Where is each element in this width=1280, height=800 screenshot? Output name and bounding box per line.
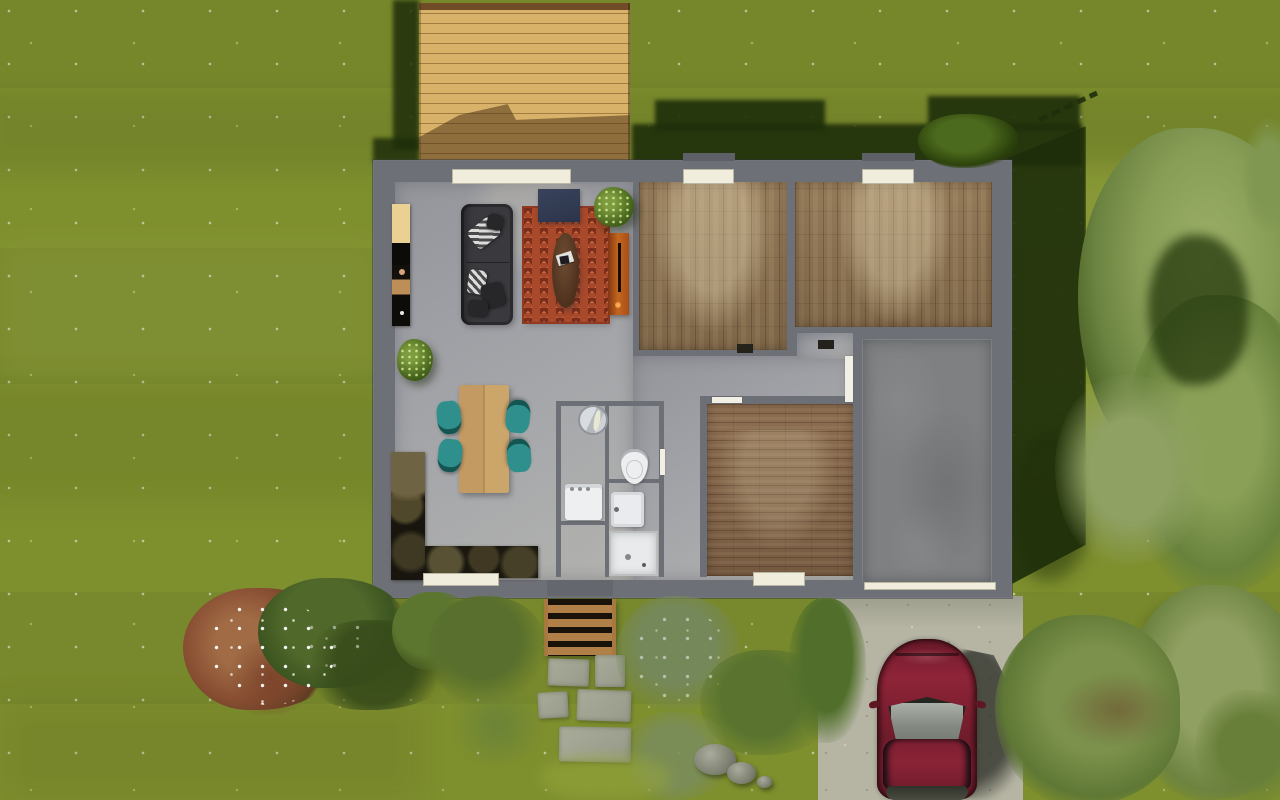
bathroom-door	[660, 449, 665, 475]
tree-right-inner-shadow	[1148, 235, 1248, 385]
house-shadow-top-step-1	[655, 100, 825, 130]
garage-floor	[862, 339, 992, 583]
dining-chair-1	[435, 400, 462, 435]
bedroom-2-door-mark	[818, 340, 834, 349]
bedroom-3-light	[720, 430, 835, 550]
window-kitchen	[423, 573, 499, 586]
bedroom-3-door	[712, 397, 742, 403]
tree-clump-top-right	[918, 114, 1018, 168]
terrace-deck	[419, 3, 630, 161]
garden-rock-medium	[727, 762, 756, 784]
coffee-table	[552, 233, 579, 308]
bedroom-2-light	[840, 182, 950, 322]
bathroom-mirror	[578, 405, 608, 435]
lawn-light-left	[0, 240, 380, 380]
window-bedroom-2	[862, 169, 914, 184]
kitchen-counter-left	[391, 452, 425, 580]
tall-cabinet	[392, 204, 410, 326]
garage-hall-door	[845, 356, 853, 402]
house-top-view-render	[0, 0, 1280, 800]
entry-step-slats	[544, 599, 616, 656]
sofa-cushion-dark-3	[467, 299, 488, 316]
shower-tray	[609, 531, 658, 576]
bush-flowers-3	[630, 610, 730, 700]
window-bedroom-1	[683, 169, 734, 184]
bathroom-sink	[611, 492, 644, 527]
tree-bottom-right-canopy-3	[1195, 690, 1280, 800]
bathroom-wall-top	[556, 401, 664, 406]
grass-light-patch-path	[540, 755, 670, 800]
bush-by-driveway	[788, 598, 866, 743]
garden-rock-small	[757, 776, 772, 788]
window-bedroom-3	[753, 572, 805, 586]
stepping-stone-1	[548, 658, 590, 686]
stepping-stone-4	[576, 689, 631, 722]
bedroom-1-light	[655, 182, 770, 332]
garage-door-sill	[864, 582, 996, 590]
car-roof	[883, 739, 971, 791]
tree-bottom-right-branches	[1058, 672, 1178, 747]
bedroom-1-door-mark	[737, 344, 753, 353]
front-door	[547, 580, 613, 596]
tv-bench-navy	[538, 189, 580, 222]
deck-shadow-left	[393, 0, 419, 150]
window-living-room	[452, 169, 571, 184]
potted-plant-small	[397, 339, 433, 381]
window-frame-bump-bed1	[683, 153, 735, 161]
car-rear-window	[886, 786, 968, 800]
bedroom-3-left-wall	[700, 396, 707, 577]
window-frame-bump-bed2	[862, 153, 915, 161]
bathroom-wall-right	[659, 401, 664, 577]
potted-plant-large	[594, 187, 634, 227]
bush-flowers-2	[300, 618, 370, 668]
bathroom-wall-left	[556, 401, 561, 577]
dining-chair-4	[506, 438, 532, 473]
lawn-band-bottom-left	[0, 700, 420, 800]
tree-right-canopy-west	[1055, 375, 1205, 565]
bathroom-wall-divider-left	[556, 521, 609, 525]
tv-cabinet-orange	[609, 233, 629, 315]
washing-machine	[565, 484, 602, 520]
deck-shadow-corner	[373, 138, 419, 162]
dining-table	[459, 385, 509, 493]
bush-path-left-low	[448, 688, 548, 763]
